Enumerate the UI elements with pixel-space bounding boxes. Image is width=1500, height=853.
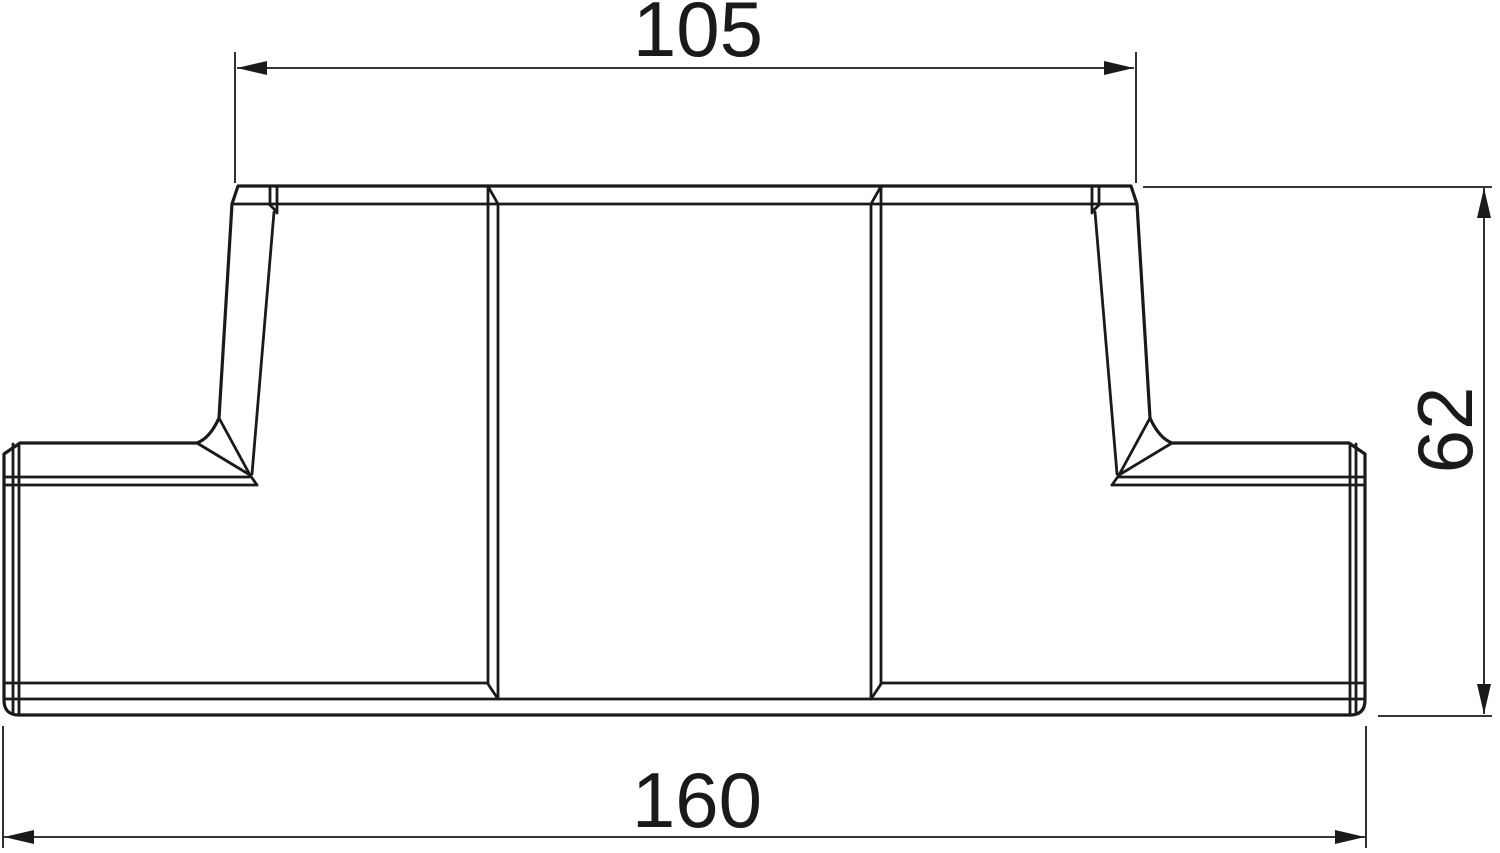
- centre-right-seam: [871, 187, 881, 699]
- centre-left-seam: [488, 187, 498, 699]
- right-inner-wall: [1095, 212, 1117, 474]
- height-value: 62: [1401, 387, 1489, 474]
- left-inner-wall: [252, 212, 274, 474]
- dimension-height: 62: [1143, 187, 1492, 716]
- right-wing-face-lines: [1112, 477, 1365, 485]
- technical-drawing-canvas: 105 62 160: [0, 0, 1500, 853]
- top-width-arrow-right: [1104, 61, 1134, 75]
- top-width-value: 105: [633, 0, 763, 73]
- total-width-arrow-left: [4, 830, 34, 844]
- height-arrow-bottom: [1477, 684, 1491, 714]
- left-top-joint: [270, 186, 277, 213]
- dimension-top-width: 105: [235, 0, 1136, 183]
- top-width-arrow-left: [237, 61, 267, 75]
- part-drawing: [4, 186, 1365, 715]
- left-fillet-fan: [197, 418, 257, 485]
- bottom-lip-lines: [4, 683, 1365, 699]
- right-top-joint: [1092, 186, 1099, 213]
- left-wing-face-lines: [4, 477, 257, 485]
- total-width-value: 160: [632, 756, 762, 844]
- height-arrow-top: [1477, 188, 1491, 218]
- total-width-arrow-right: [1335, 830, 1365, 844]
- t-piece-dimension-drawing: 105 62 160: [0, 0, 1500, 853]
- right-fillet-fan: [1112, 418, 1172, 485]
- dimension-total-width: 160: [3, 726, 1366, 848]
